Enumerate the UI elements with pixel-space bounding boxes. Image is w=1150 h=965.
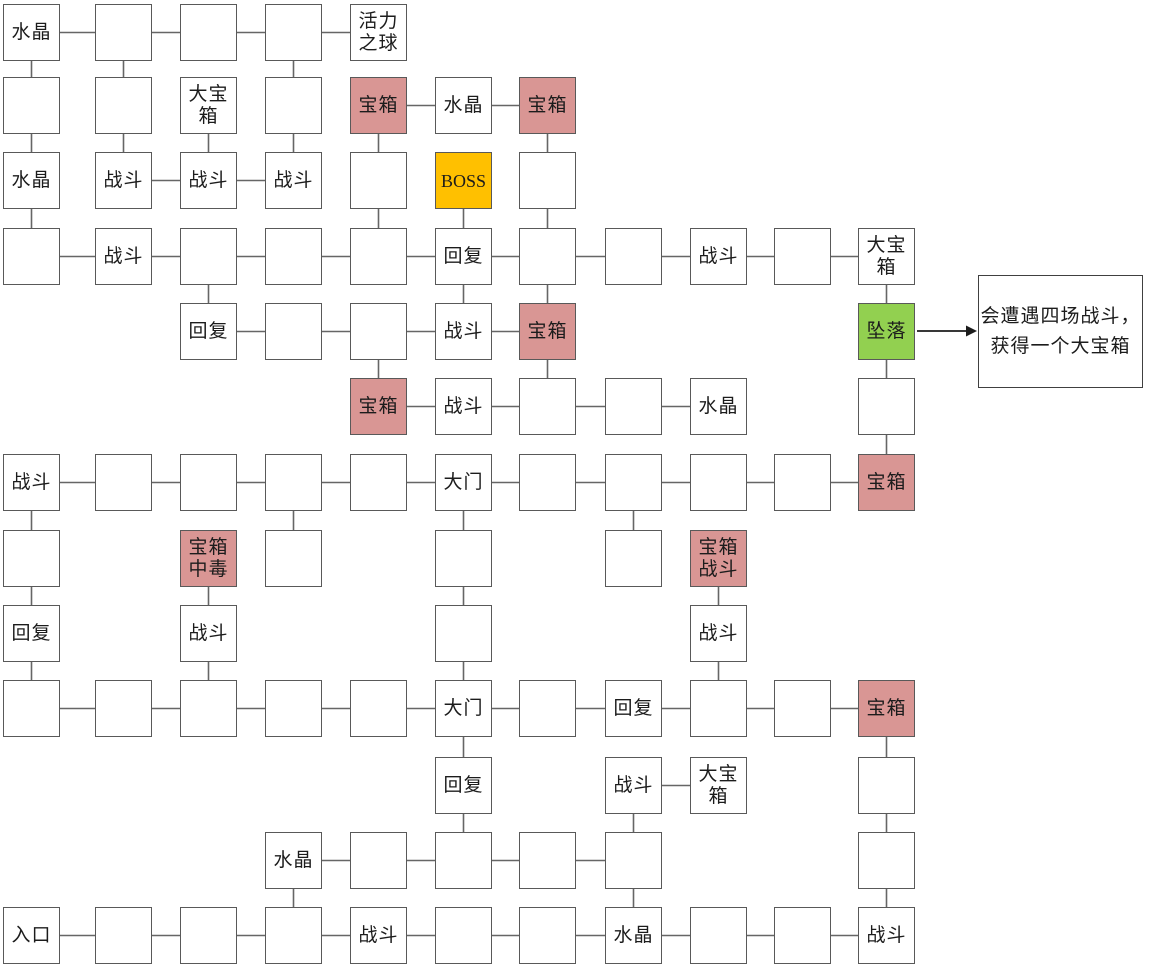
map-node-label: 回复: [188, 321, 228, 343]
map-node-r9c4: [350, 680, 407, 737]
map-node-r8c0-normal: 回复: [3, 605, 60, 662]
map-node-r9c7-normal: 回复: [605, 680, 662, 737]
map-node-r12c10-normal: 战斗: [858, 907, 915, 964]
map-node-r11c3-normal: 水晶: [265, 832, 322, 889]
map-node-label: 战斗: [103, 246, 143, 268]
map-node-r5c4-chest: 宝箱: [350, 378, 407, 435]
map-node-r2c0-normal: 水晶: [3, 152, 60, 209]
map-node-r11c6: [519, 832, 576, 889]
map-node-r2c1-normal: 战斗: [95, 152, 152, 209]
map-node-label: 入口: [11, 925, 51, 947]
map-node-r2c6: [519, 152, 576, 209]
map-node-r7c2-chest: 宝箱 中毒: [180, 530, 237, 587]
map-node-r10c7-normal: 战斗: [605, 757, 662, 814]
map-node-r6c4: [350, 454, 407, 511]
map-node-r0c4-normal: 活力 之球: [350, 4, 407, 61]
map-node-r9c1: [95, 680, 152, 737]
map-node-label: 宝箱: [358, 396, 398, 418]
map-node-label: 战斗: [188, 623, 228, 645]
map-node-r6c7: [605, 454, 662, 511]
map-node-r1c4-chest: 宝箱: [350, 77, 407, 134]
map-node-label: 战斗: [273, 170, 313, 192]
map-node-r5c7: [605, 378, 662, 435]
map-node-label: 大门: [443, 698, 483, 720]
map-node-label: 战斗: [866, 925, 906, 947]
map-node-r2c2-normal: 战斗: [180, 152, 237, 209]
map-node-r3c9: [774, 228, 831, 285]
annotation-line-2: 获得一个大宝箱: [990, 332, 1130, 362]
map-node-r6c2: [180, 454, 237, 511]
map-node-r6c10-chest: 宝箱: [858, 454, 915, 511]
map-node-r0c3: [265, 4, 322, 61]
map-node-label: 水晶: [698, 396, 738, 418]
map-node-label: 战斗: [103, 170, 143, 192]
map-node-r9c0: [3, 680, 60, 737]
map-node-label: 水晶: [273, 850, 313, 872]
map-node-label: 大宝 箱: [698, 764, 738, 808]
map-node-label: 回复: [443, 775, 483, 797]
map-node-r6c5-normal: 大门: [435, 454, 492, 511]
map-node-r3c7: [605, 228, 662, 285]
map-node-r3c10-normal: 大宝 箱: [858, 228, 915, 285]
map-node-label: 活力 之球: [358, 11, 398, 55]
map-node-label: 宝箱: [527, 95, 567, 117]
map-node-r12c7-normal: 水晶: [605, 907, 662, 964]
map-node-r3c1-normal: 战斗: [95, 228, 152, 285]
dungeon-map-diagram: 会遭遇四场战斗， 获得一个大宝箱 水晶活力 之球大宝 箱宝箱水晶宝箱水晶战斗战斗…: [0, 0, 1150, 965]
map-node-r5c6: [519, 378, 576, 435]
map-node-r3c3: [265, 228, 322, 285]
map-node-label: 宝箱 中毒: [188, 537, 228, 581]
map-node-r0c1: [95, 4, 152, 61]
map-node-r4c5-normal: 战斗: [435, 303, 492, 360]
map-node-r12c9: [774, 907, 831, 964]
map-node-r5c8-normal: 水晶: [690, 378, 747, 435]
map-node-label: 宝箱: [527, 321, 567, 343]
map-node-label: 回复: [443, 246, 483, 268]
map-node-r3c2: [180, 228, 237, 285]
map-node-label: 水晶: [11, 170, 51, 192]
map-node-r12c4-normal: 战斗: [350, 907, 407, 964]
map-node-r8c8-normal: 战斗: [690, 605, 747, 662]
map-node-r6c3: [265, 454, 322, 511]
map-node-r9c2: [180, 680, 237, 737]
map-node-label: 回复: [11, 623, 51, 645]
map-node-r5c5-normal: 战斗: [435, 378, 492, 435]
map-node-r3c6: [519, 228, 576, 285]
map-node-label: 水晶: [443, 95, 483, 117]
map-node-r11c4: [350, 832, 407, 889]
map-node-label: 宝箱 战斗: [698, 537, 738, 581]
map-node-r7c7: [605, 530, 662, 587]
map-node-label: 大宝 箱: [866, 235, 906, 279]
map-node-r3c4: [350, 228, 407, 285]
map-node-r4c4: [350, 303, 407, 360]
map-node-label: 水晶: [11, 22, 51, 44]
map-node-r1c3: [265, 77, 322, 134]
map-node-r9c10-chest: 宝箱: [858, 680, 915, 737]
annotation-line-1: 会遭遇四场战斗，: [980, 302, 1140, 332]
map-node-r1c2-normal: 大宝 箱: [180, 77, 237, 134]
map-node-r10c10: [858, 757, 915, 814]
map-node-r7c3: [265, 530, 322, 587]
map-node-r1c0: [3, 77, 60, 134]
map-node-r10c8-normal: 大宝 箱: [690, 757, 747, 814]
map-node-r5c10: [858, 378, 915, 435]
map-node-r9c8: [690, 680, 747, 737]
map-node-r6c8: [690, 454, 747, 511]
map-node-r12c8: [690, 907, 747, 964]
map-node-r6c6: [519, 454, 576, 511]
map-node-r11c7: [605, 832, 662, 889]
map-node-r12c6: [519, 907, 576, 964]
map-node-r8c2-normal: 战斗: [180, 605, 237, 662]
map-node-r4c3: [265, 303, 322, 360]
annotation-arrow-head: [966, 326, 977, 337]
map-node-r9c5-normal: 大门: [435, 680, 492, 737]
map-node-r11c10: [858, 832, 915, 889]
map-node-label: 坠落: [866, 321, 906, 343]
map-node-label: 战斗: [698, 246, 738, 268]
map-node-label: 战斗: [443, 321, 483, 343]
map-node-label: 战斗: [11, 472, 51, 494]
map-node-r0c2: [180, 4, 237, 61]
map-node-r12c0-normal: 入口: [3, 907, 60, 964]
map-node-r9c3: [265, 680, 322, 737]
map-node-label: 战斗: [443, 396, 483, 418]
map-node-r3c8-normal: 战斗: [690, 228, 747, 285]
map-node-r12c3: [265, 907, 322, 964]
map-node-r4c10-fall: 坠落: [858, 303, 915, 360]
map-node-r4c2-normal: 回复: [180, 303, 237, 360]
map-node-r4c6-chest: 宝箱: [519, 303, 576, 360]
map-node-label: BOSS: [441, 170, 486, 192]
map-node-r6c0-normal: 战斗: [3, 454, 60, 511]
map-node-label: 战斗: [613, 775, 653, 797]
map-node-r1c1: [95, 77, 152, 134]
map-node-label: 大门: [443, 472, 483, 494]
map-node-r1c5-normal: 水晶: [435, 77, 492, 134]
map-node-r12c1: [95, 907, 152, 964]
map-node-label: 战斗: [698, 623, 738, 645]
map-node-r11c5: [435, 832, 492, 889]
map-node-label: 战斗: [188, 170, 228, 192]
map-node-label: 宝箱: [358, 95, 398, 117]
map-node-r12c2: [180, 907, 237, 964]
map-node-label: 大宝 箱: [188, 84, 228, 128]
map-node-label: 战斗: [358, 925, 398, 947]
map-node-r7c5: [435, 530, 492, 587]
map-node-label: 回复: [613, 698, 653, 720]
map-node-r3c0: [3, 228, 60, 285]
map-node-r8c5: [435, 605, 492, 662]
map-node-label: 宝箱: [866, 472, 906, 494]
map-node-r7c0: [3, 530, 60, 587]
map-node-r3c5-normal: 回复: [435, 228, 492, 285]
map-node-r6c1: [95, 454, 152, 511]
map-node-r2c4: [350, 152, 407, 209]
map-node-r7c8-chest: 宝箱 战斗: [690, 530, 747, 587]
map-node-r1c6-chest: 宝箱: [519, 77, 576, 134]
map-node-r9c6: [519, 680, 576, 737]
map-node-r9c9: [774, 680, 831, 737]
annotation-box: 会遭遇四场战斗， 获得一个大宝箱: [978, 275, 1143, 388]
map-node-r0c0-normal: 水晶: [3, 4, 60, 61]
map-node-r2c3-normal: 战斗: [265, 152, 322, 209]
map-node-r6c9: [774, 454, 831, 511]
map-node-label: 宝箱: [866, 698, 906, 720]
map-node-r2c5-boss: BOSS: [435, 152, 492, 209]
map-node-r10c5-normal: 回复: [435, 757, 492, 814]
map-node-label: 水晶: [613, 925, 653, 947]
map-node-r12c5: [435, 907, 492, 964]
